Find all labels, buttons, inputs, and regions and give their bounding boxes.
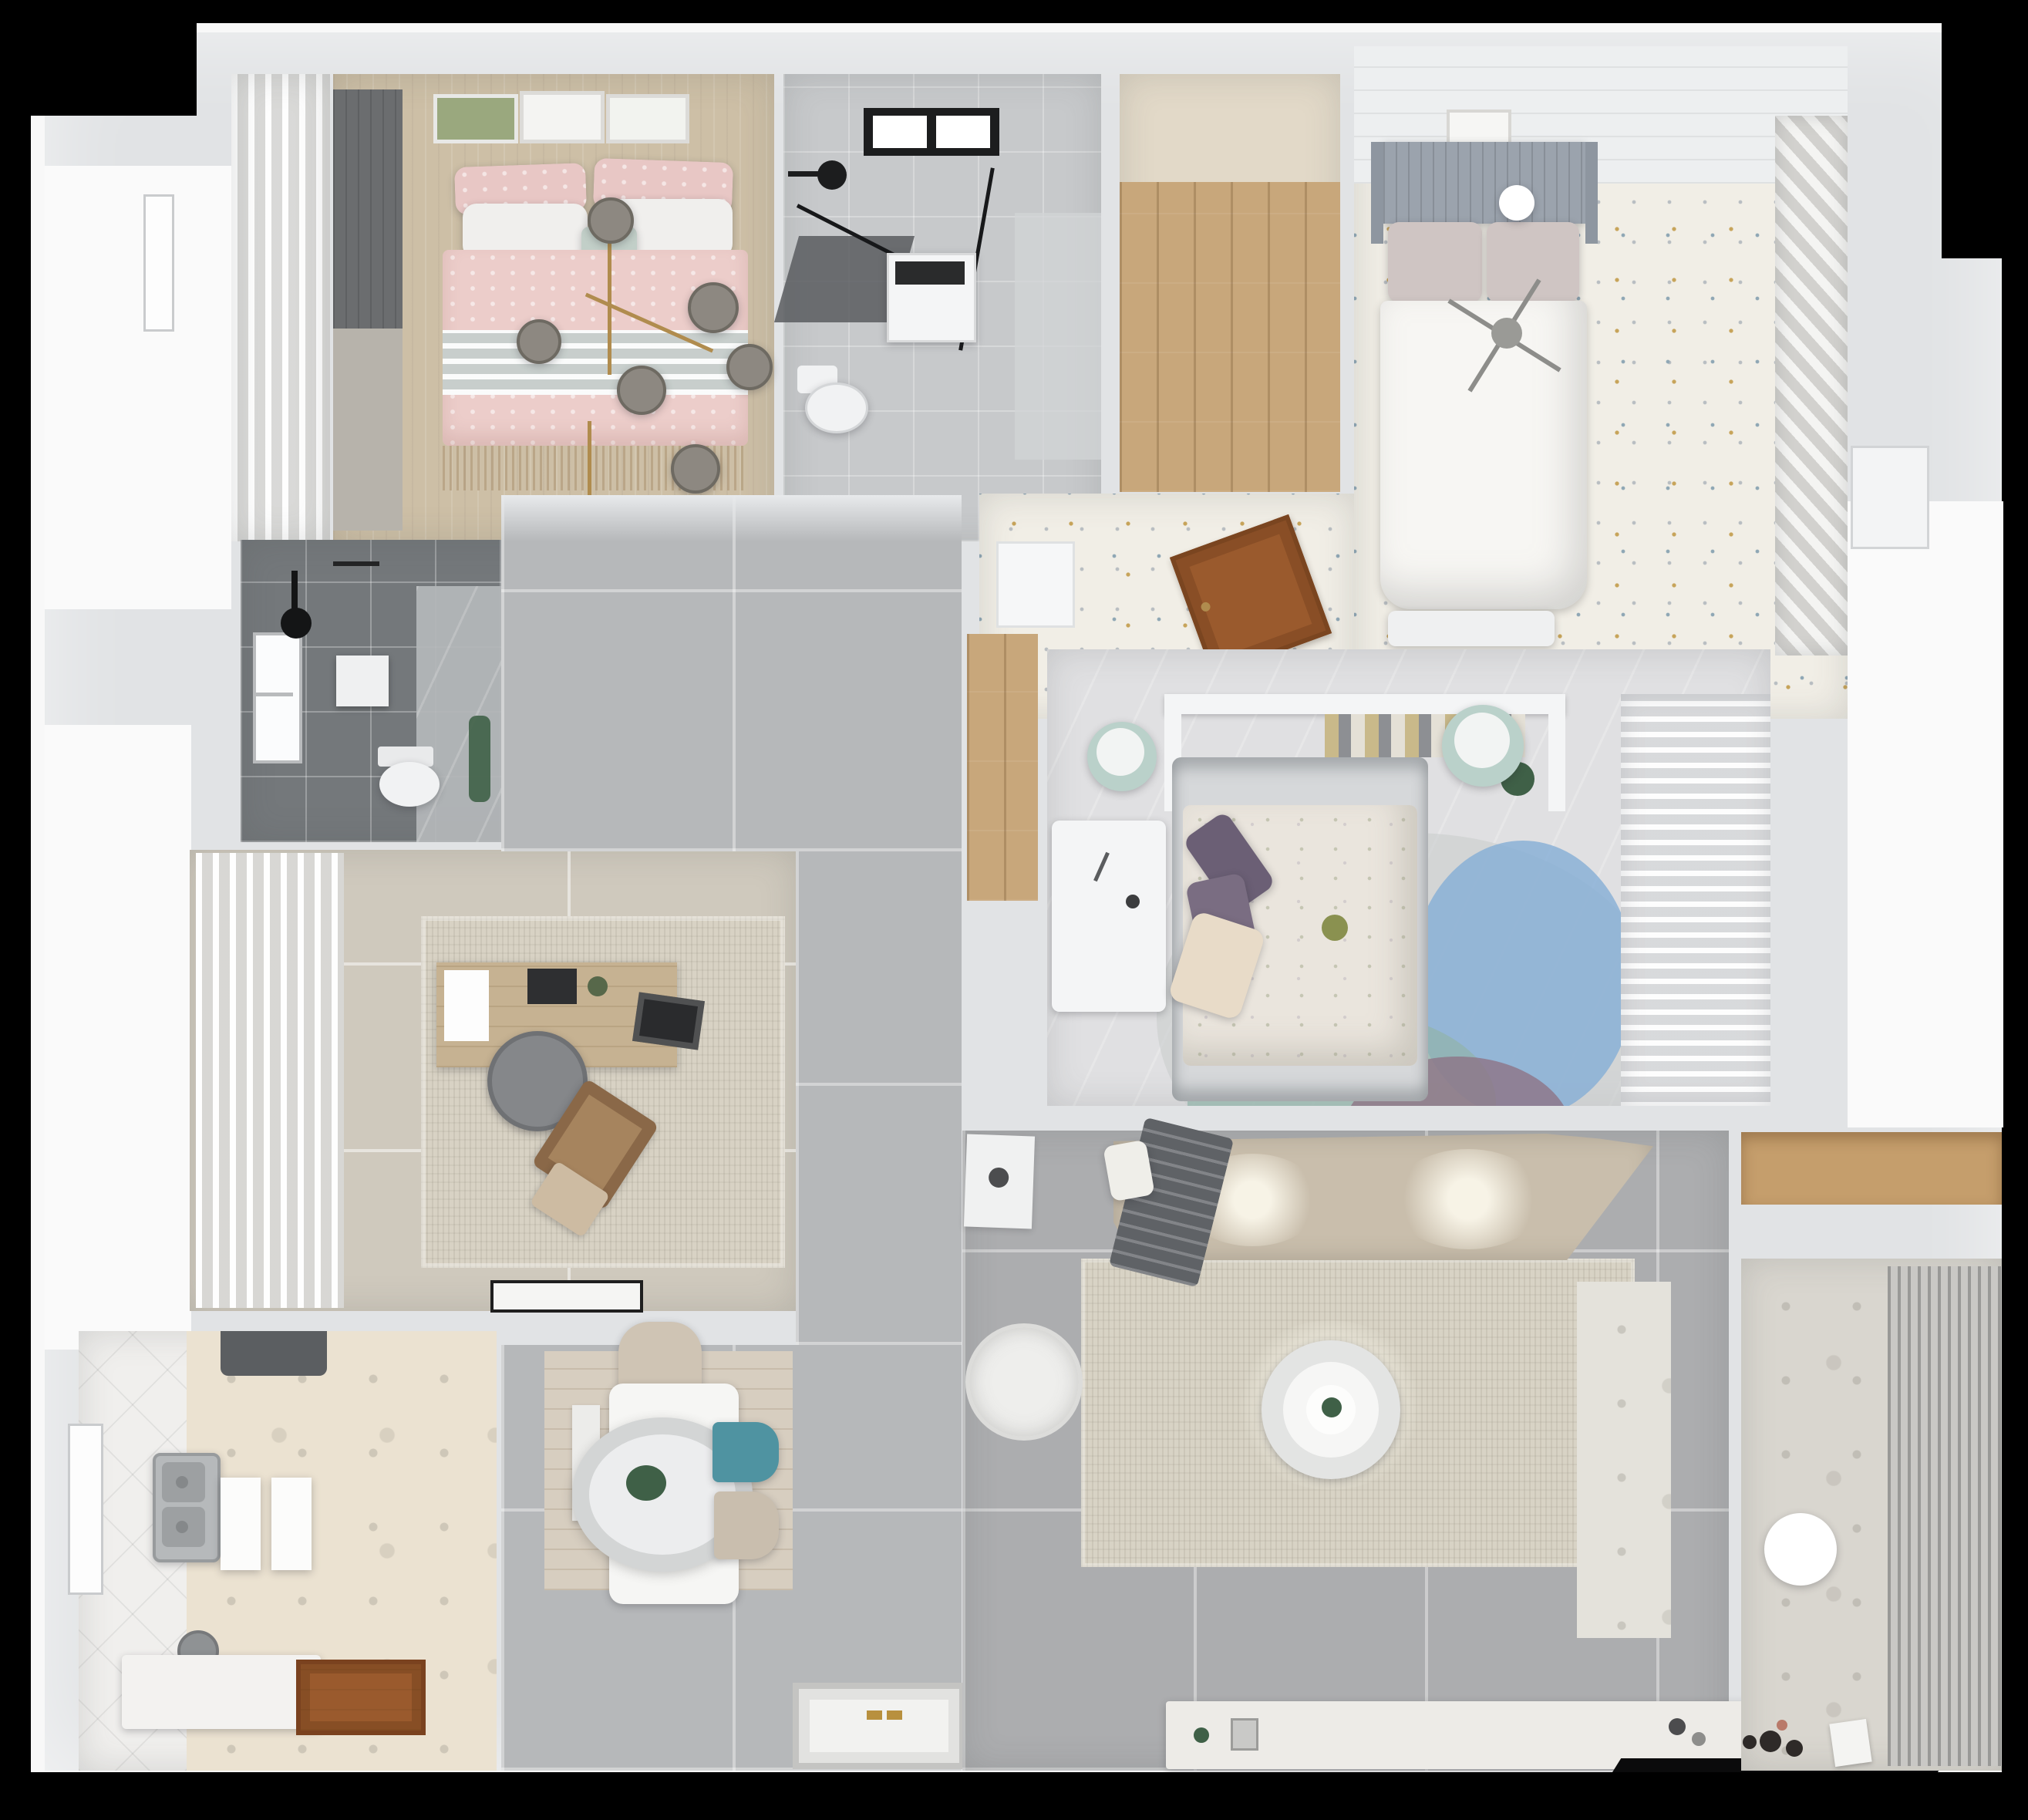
ball-lamp — [1764, 1513, 1837, 1586]
toilet-bowl — [805, 383, 868, 433]
hall-ceiling-light-band — [501, 495, 962, 541]
dining-chair-teal — [712, 1422, 779, 1482]
wall-art-frame — [433, 94, 518, 143]
window-pane — [936, 116, 990, 148]
towel-bar — [333, 561, 379, 566]
exterior-cutout-left-mid — [45, 725, 191, 1350]
storage-niche-wood — [1741, 1132, 2002, 1205]
washing-machine — [887, 253, 976, 342]
console-decor-frame — [1231, 1718, 1258, 1751]
window-mullion — [256, 693, 293, 696]
right-door-niche — [1851, 446, 1929, 549]
washer-panel — [895, 261, 965, 285]
exterior-cutout-left-top — [45, 166, 231, 609]
hallway-upper — [501, 495, 962, 851]
entry-door-wood — [296, 1660, 426, 1735]
room-bedroom2 — [333, 74, 774, 541]
master-nook-wood-floor — [967, 634, 1038, 901]
chandelier-globe — [617, 366, 666, 415]
study-curtains — [196, 853, 344, 1308]
chandelier-stem — [608, 221, 611, 375]
room-bathroom1 — [783, 74, 1101, 541]
sink-drain-icon — [176, 1476, 188, 1488]
window-curtain-dark — [333, 89, 403, 329]
sofa-light-glow — [1391, 1149, 1545, 1249]
room-balcony — [1741, 1259, 2002, 1771]
paper-sheet — [444, 970, 489, 1041]
accent-tile-strip — [1577, 1282, 1671, 1638]
chandelier-globe — [517, 319, 561, 364]
chandelier-globe — [588, 197, 634, 244]
doormat — [490, 1280, 643, 1313]
ac-vent-grille — [996, 541, 1075, 628]
master-desk — [1052, 821, 1166, 1012]
hallway-corridor — [796, 851, 962, 1345]
frame-top — [0, 0, 2028, 23]
duvet-plant-sprig — [1322, 915, 1348, 941]
window-frame — [143, 194, 174, 332]
ceiling-fan-hub — [1491, 318, 1522, 349]
wall-art-frame — [606, 94, 689, 143]
side-table-plant-icon — [989, 1168, 1009, 1188]
frame-left — [0, 0, 31, 1820]
bed-headboard — [1383, 142, 1585, 224]
table-plant-icon — [626, 1465, 666, 1501]
bathtub-counter-block — [122, 1655, 321, 1729]
room-closet-hall — [1120, 74, 1340, 492]
headboard-shelf-post — [1548, 694, 1565, 811]
dining-chair-beige — [618, 1322, 702, 1390]
shower-mat — [336, 656, 389, 706]
sphere-lamp — [1499, 185, 1534, 221]
pouf-mint — [1442, 705, 1524, 787]
double-sink — [153, 1453, 221, 1562]
sheer-curtain-wardrobe — [1621, 694, 1770, 1106]
headboard-post — [1585, 142, 1598, 244]
bed-duvet-white — [1380, 301, 1587, 609]
entry-door-handle-icon — [887, 1710, 902, 1720]
armchair-round — [965, 1323, 1083, 1441]
room-master-bedroom — [1047, 649, 1770, 1106]
console-decor-vase — [1669, 1718, 1686, 1735]
entry-mat — [793, 1683, 965, 1769]
toy-dark — [1786, 1740, 1803, 1757]
shower-head-icon — [817, 160, 847, 190]
side-table-white — [964, 1134, 1035, 1229]
chandelier-globe — [726, 344, 773, 390]
toilet-bowl — [379, 762, 440, 807]
toy-dark — [1760, 1731, 1781, 1752]
balcony-roller-blinds — [1888, 1266, 2002, 1766]
desk-dot — [1126, 895, 1140, 908]
headboard-post — [1371, 142, 1383, 244]
coffee-table-ring — [1262, 1340, 1400, 1479]
window-frame — [68, 1424, 103, 1595]
room-living — [962, 1131, 1729, 1771]
pouf-mint — [1087, 722, 1157, 791]
desk-pad-dark — [527, 969, 577, 1004]
console-decor-plant — [1194, 1727, 1209, 1743]
dining-chair-beige2 — [714, 1491, 779, 1559]
floor-plan-scene — [0, 0, 2028, 1820]
foot-bench — [1388, 611, 1555, 646]
chandelier-globe — [688, 282, 739, 333]
exterior-cutout-right — [1848, 501, 2003, 1127]
toy-pink — [1777, 1720, 1787, 1731]
door-knob-icon — [1200, 601, 1211, 612]
chandelier-globe — [671, 444, 720, 494]
room-side-ledge — [231, 74, 330, 541]
window-frame — [253, 632, 302, 763]
window-curtain-light — [333, 329, 403, 531]
pillow-mauve — [1388, 222, 1482, 302]
frame-right — [2003, 0, 2028, 1820]
plant-green — [469, 716, 490, 802]
laptop — [632, 992, 705, 1050]
shower-head-icon — [281, 608, 312, 639]
sectional-sofa — [1113, 1131, 1669, 1269]
entry-door-handle-icon — [867, 1710, 882, 1720]
pouf-top — [1454, 713, 1510, 768]
frame-bottom — [0, 1772, 2028, 1820]
window-black-frame — [864, 108, 999, 156]
room-kitchen — [79, 1331, 497, 1771]
room-study — [190, 850, 796, 1311]
desk-plant-icon — [588, 976, 608, 996]
pouf-top — [1097, 728, 1144, 776]
ceiling-light-panel — [271, 1478, 312, 1570]
sink-drain-icon — [176, 1521, 188, 1533]
coffee-plant-icon — [1322, 1397, 1342, 1417]
room-bedroom1 — [1354, 46, 1848, 719]
window-pane — [873, 116, 927, 148]
closet-wood-floor — [1120, 182, 1340, 492]
wall-art-frame — [520, 91, 605, 143]
wardrobe-louver-doors — [1775, 116, 1848, 656]
desk-pencil-icon — [1093, 852, 1110, 882]
ceiling-light-panel — [221, 1478, 261, 1570]
console-decor-vase — [1692, 1732, 1706, 1746]
range-hood — [221, 1331, 327, 1376]
room-dining — [501, 1345, 962, 1771]
toy-dark — [1743, 1735, 1757, 1749]
shower-arm — [788, 171, 820, 177]
black-mask-top-left — [31, 23, 197, 116]
balcony-papers — [1829, 1719, 1871, 1767]
vanity-shadow — [1015, 213, 1101, 460]
